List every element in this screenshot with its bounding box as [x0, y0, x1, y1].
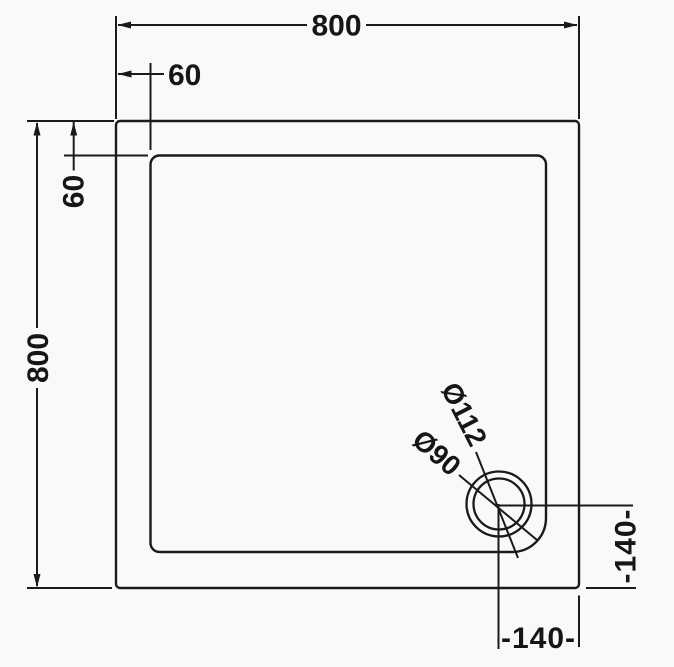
- svg-text:60: 60: [58, 175, 91, 208]
- svg-text:800: 800: [311, 10, 361, 43]
- svg-text:-140-: -140-: [501, 622, 576, 655]
- svg-text:800: 800: [22, 333, 55, 383]
- svg-text:60: 60: [168, 59, 201, 92]
- svg-text:-140-: -140-: [610, 508, 643, 583]
